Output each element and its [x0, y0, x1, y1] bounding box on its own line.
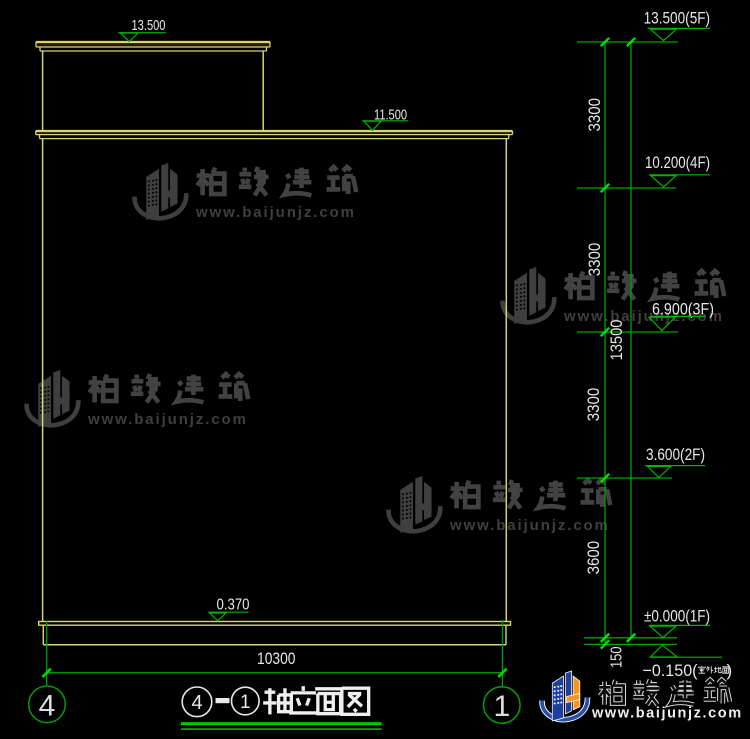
svg-text:±0.000(1F): ±0.000(1F)	[644, 606, 710, 625]
svg-text:13.500(5F): 13.500(5F)	[644, 8, 711, 27]
svg-text:1: 1	[240, 692, 251, 713]
svg-text:−0.150(: −0.150(	[643, 661, 698, 680]
svg-text:13500: 13500	[607, 320, 626, 361]
svg-text:0.370: 0.370	[217, 596, 250, 613]
svg-text:www.baijunjz.com: www.baijunjz.com	[591, 706, 743, 722]
svg-text:3.600(2F): 3.600(2F)	[646, 445, 705, 464]
svg-text:6.900(3F): 6.900(3F)	[652, 299, 714, 318]
svg-text:150: 150	[609, 646, 626, 668]
svg-text:10300: 10300	[257, 649, 296, 668]
svg-text:1: 1	[493, 690, 510, 723]
svg-text:4: 4	[191, 692, 202, 714]
svg-text:13.500: 13.500	[132, 17, 166, 34]
svg-text:3300: 3300	[585, 98, 604, 132]
svg-text:10.200(4F): 10.200(4F)	[645, 153, 710, 172]
svg-text:3300: 3300	[584, 388, 603, 422]
svg-text:4: 4	[39, 690, 56, 723]
svg-text:3600: 3600	[584, 541, 603, 575]
svg-text:3300: 3300	[585, 243, 604, 277]
svg-text:): )	[727, 661, 733, 680]
